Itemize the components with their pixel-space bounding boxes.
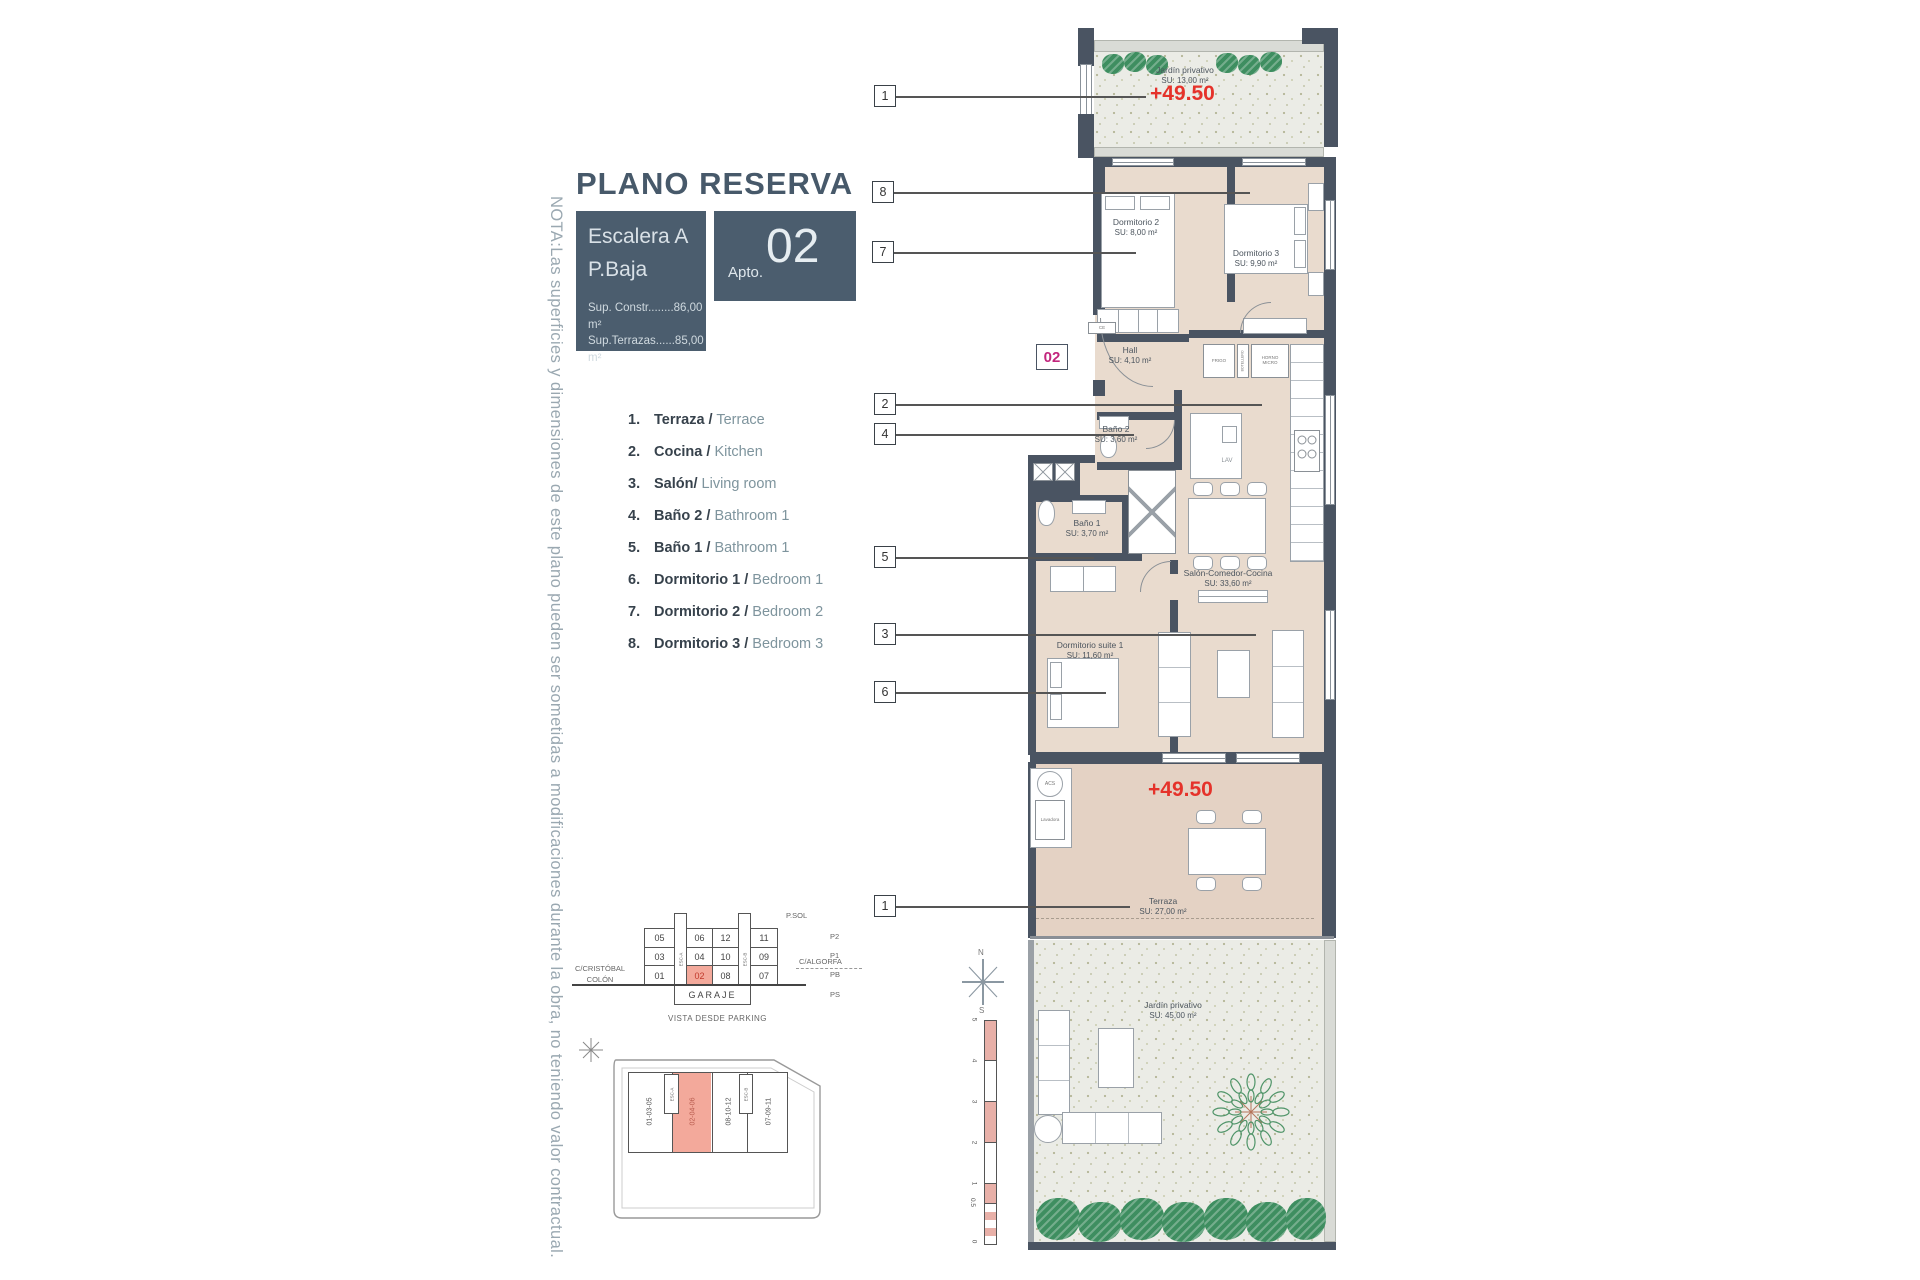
lav-label: LAV [1212, 458, 1242, 464]
chair [1220, 482, 1240, 496]
leader-line [896, 557, 1094, 559]
garden-round-table [1034, 1115, 1062, 1143]
bano1-sink [1072, 500, 1106, 514]
terrace-table [1188, 828, 1266, 875]
bush [1102, 54, 1124, 74]
leader-line [896, 404, 1262, 406]
partition-bano2-right [1174, 390, 1182, 470]
kitchen-island [1190, 413, 1242, 479]
apto-label: Apto. [728, 264, 763, 281]
scale-label: 5 [970, 1018, 977, 1022]
unit-cell: 07 [750, 965, 778, 986]
chair [1242, 877, 1262, 891]
scale-segment [984, 1102, 997, 1143]
callout-6: 6 [874, 681, 896, 703]
leader-line [896, 634, 1256, 636]
title-block-escalera: Escalera A P.Baja Sup. Constr........86,… [576, 211, 706, 351]
window [1080, 64, 1092, 116]
shaft-unit [1033, 463, 1053, 481]
leader-line [894, 252, 1136, 254]
scale-segment [984, 1204, 997, 1245]
callout-8: 8 [872, 181, 894, 203]
sliding-door [1162, 753, 1226, 763]
compass-north-label: N [978, 948, 984, 957]
bush [1204, 1198, 1248, 1240]
psol-label: P.SOL [786, 911, 807, 920]
unit-cell: 12 [712, 928, 739, 948]
level-label: PS [830, 990, 840, 999]
note-vertical-text: NOTA:Las superficies y dimensiones de es… [546, 196, 565, 1258]
street-line [572, 984, 806, 986]
section-divider [712, 1072, 713, 1153]
roof-band [1094, 40, 1324, 52]
pillow [1050, 694, 1062, 720]
level-label: PB [830, 970, 840, 979]
scale-segment [984, 1020, 997, 1061]
legend-item: 3.Salón/ Living room [628, 476, 777, 492]
leader-line [896, 692, 1106, 694]
legend-item: 8.Dormitorio 3 / Bedroom 3 [628, 636, 823, 652]
pillow [1105, 196, 1135, 210]
level-mark-top: +49.50 [1150, 82, 1215, 106]
label-dorm3: Dormitorio 3 SU: 9,90 m² [1210, 248, 1302, 269]
horno-box: HORNOMICRO [1251, 344, 1289, 378]
callout-5: 5 [874, 546, 896, 568]
scale-segment [984, 1184, 997, 1204]
leader-line [896, 96, 1146, 98]
terrace-garden-line [1030, 936, 1334, 939]
chair [1196, 877, 1216, 891]
callout-2: 2 [874, 393, 896, 415]
unit-cell: 01 [644, 965, 675, 986]
chair [1196, 810, 1216, 824]
label-bano2: Baño 2 SU: 3,60 m² [1082, 424, 1150, 445]
unit-cell: 05 [644, 928, 675, 948]
esc-a-box: ESC-A [664, 1074, 679, 1114]
street-dash [796, 968, 862, 969]
site-block-label: 07-09-11 [766, 1072, 773, 1152]
bush [1260, 52, 1282, 72]
window [1325, 610, 1335, 700]
title-block-apto: Apto. 02 [714, 211, 856, 301]
chair [1193, 482, 1213, 496]
legend-item: 6.Dormitorio 1 / Bedroom 1 [628, 572, 823, 588]
wall [1324, 40, 1338, 147]
esc-b-box: ESC-B [739, 1074, 753, 1114]
scale-label: 2 [970, 1141, 977, 1145]
scale-label: 1 [970, 1182, 977, 1186]
pillow [1140, 196, 1170, 210]
legend-item: 1.Terraza / Terrace [628, 412, 765, 428]
terrace-wall-right [1322, 762, 1336, 938]
callout-1-top: 1 [874, 85, 896, 107]
overhang-band [1094, 147, 1324, 157]
legend-item: 4.Baño 2 / Bathroom 1 [628, 508, 789, 524]
scale-bar [984, 1020, 997, 1245]
unit-cell: 08 [712, 965, 739, 986]
unit-cell: 04 [686, 947, 713, 966]
label-salon: Salón-Comedor-Cocina SU: 33,60 m² [1172, 568, 1284, 589]
sink [1222, 426, 1237, 443]
legend-item: 7.Dormitorio 2 / Bedroom 2 [628, 604, 823, 620]
sup-terrazas: Sup.Terrazas......85,00 m² [588, 333, 706, 366]
compass-rose [962, 958, 1006, 1006]
unit-cell: 03 [644, 947, 675, 966]
sliding-door [1236, 753, 1300, 763]
suite-wardrobe [1050, 566, 1116, 592]
label-dorm2: Dormitorio 2 SU: 8,00 m² [1090, 217, 1182, 238]
garden-wall-bottom [1028, 1242, 1336, 1250]
page-title: PLANO RESERVA [576, 166, 853, 202]
chair [1242, 810, 1262, 824]
level-mark-terrace: +49.50 [1148, 778, 1213, 802]
nightstand [1308, 272, 1324, 296]
street-left-label: C/CRISTÓBAL [570, 964, 630, 973]
wall [1078, 114, 1094, 158]
label-bano1: Baño 1 SU: 3,70 m² [1053, 518, 1121, 539]
nightstand [1308, 183, 1324, 211]
botellero-box: BOTELLERO [1237, 344, 1249, 378]
label-hall: Hall SU: 4,10 m² [1096, 345, 1164, 366]
sofa-left [1158, 632, 1191, 737]
leader-line [896, 906, 1130, 908]
sofa-right [1272, 630, 1304, 738]
chair [1247, 482, 1267, 496]
bush [1036, 1198, 1080, 1240]
apto-number: 02 [766, 219, 819, 274]
terrace-dashed-line [1036, 918, 1314, 919]
coffee-table [1217, 650, 1250, 698]
garden-sofa-horizontal [1062, 1112, 1162, 1144]
legend-item: 2.Cocina / Kitchen [628, 444, 763, 460]
floor-plan-sheet: NOTA:Las superficies y dimensiones de es… [0, 0, 1920, 1280]
hob [1294, 430, 1320, 472]
wall [1078, 28, 1094, 66]
wardrobe-x [1128, 470, 1176, 554]
bush [1238, 55, 1260, 75]
frigo-box: FRIGO [1203, 344, 1235, 378]
scale-label: 3 [970, 1100, 977, 1104]
unit-cell: 06 [686, 928, 713, 948]
callout-7: 7 [872, 241, 894, 263]
lavadora-box: Lavadora [1035, 800, 1065, 840]
bush [1120, 1198, 1164, 1240]
unit-cell: 10 [712, 947, 739, 966]
callout-4: 4 [874, 423, 896, 445]
window [1325, 395, 1335, 505]
callout-1-bottom: 1 [874, 895, 896, 917]
scale-label: 0.5 [969, 1198, 976, 1207]
ce-box: CE [1088, 322, 1116, 334]
bush [1162, 1202, 1206, 1242]
unit-cell: 11 [750, 928, 778, 948]
shaft-unit [1055, 463, 1075, 481]
tv-bench [1198, 590, 1268, 603]
unit-cell: 09 [750, 947, 778, 966]
window [1242, 158, 1306, 166]
apartment-number-badge: 02 [1036, 344, 1068, 370]
site-block-label: 08-10-12 [726, 1072, 733, 1152]
acs-boiler: ACS [1037, 771, 1063, 797]
street-left-label2: COLÓN [570, 975, 630, 984]
legend-item: 5.Baño 1 / Bathroom 1 [628, 540, 789, 556]
street-right-label: C/ALGORFA [799, 957, 842, 966]
pillow [1294, 207, 1306, 235]
bush [1286, 1198, 1326, 1240]
garden-square-table [1098, 1028, 1134, 1088]
dining-table [1188, 498, 1266, 554]
parking-caption: VISTA DESDE PARKING [668, 1014, 767, 1023]
bush [1078, 1202, 1122, 1242]
bush [1246, 1202, 1288, 1242]
callout-3: 3 [874, 623, 896, 645]
site-compass-star [579, 1038, 603, 1062]
window [1112, 158, 1174, 166]
site-block-label-highlight: 02-04-06 [690, 1072, 697, 1152]
scale-label: 0 [970, 1240, 977, 1244]
scale-segment [984, 1143, 997, 1184]
garden-wall-left [1028, 940, 1034, 1242]
escalera-label: Escalera A [588, 221, 706, 254]
label-bottom-garden: Jardín privativo SU: 45,00 m² [1118, 1000, 1228, 1021]
garden-tree [1205, 1066, 1297, 1158]
partition-bano2-bottom [1097, 462, 1182, 470]
garage-cell: GARAJE [674, 985, 751, 1005]
sup-constr: Sup. Constr........86,00 m² [588, 300, 706, 333]
scale-segment [984, 1061, 997, 1102]
planta-label: P.Baja [588, 254, 706, 287]
label-suite: Dormitorio suite 1 SU: 11,60 m² [1040, 640, 1140, 661]
site-block-label: 01-03-05 [647, 1072, 654, 1152]
pillow [1050, 662, 1062, 688]
label-terraza: Terraza SU: 27,00 m² [1118, 896, 1208, 917]
unit-cell-highlighted: 02 [686, 965, 713, 986]
scale-label: 4 [970, 1059, 977, 1063]
garden-sofa-vertical [1038, 1010, 1070, 1115]
compass-south-label: S [979, 1006, 984, 1015]
garden-fence-right [1324, 940, 1336, 1242]
leader-line [894, 192, 1250, 194]
wall-stub [1093, 380, 1105, 396]
window [1325, 200, 1335, 270]
level-label: P2 [830, 932, 839, 941]
